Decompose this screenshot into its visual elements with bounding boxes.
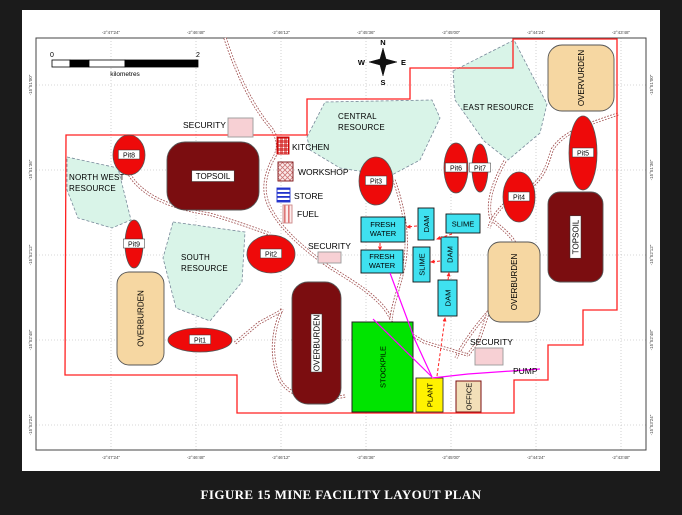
- central-resource-label: RESOURCE: [338, 123, 385, 132]
- svg-text:FRESH: FRESH: [369, 252, 394, 261]
- pit-label: Pit6: [450, 166, 462, 173]
- svg-text:WATER: WATER: [370, 229, 397, 238]
- pit-label: Pit2: [265, 252, 277, 259]
- overburden-west-label: OVERBURDEN: [137, 290, 146, 347]
- svg-text:OVERBURDEN: OVERBURDEN: [313, 315, 322, 372]
- svg-text:E: E: [401, 58, 406, 67]
- fuel-box: [283, 205, 292, 223]
- label-pump: PUMP: [513, 366, 538, 376]
- x-tick-bottom: -2°46'12": [272, 455, 291, 460]
- x-tick-bottom: -2°44'24": [527, 455, 546, 460]
- pit-label: Pit7: [474, 166, 486, 173]
- svg-text:WATER: WATER: [369, 261, 396, 270]
- x-tick-bottom: -2°45'36": [357, 455, 376, 460]
- svg-text:DAM: DAM: [445, 246, 454, 263]
- label-kitchen: KITCHEN: [292, 142, 329, 152]
- svg-text:OVERBURDEN: OVERBURDEN: [137, 290, 146, 347]
- y-tick-left: -15°52'48": [28, 329, 33, 350]
- dam-1-label: DAM: [422, 216, 431, 233]
- svg-text:TOPSOIL: TOPSOIL: [196, 172, 231, 181]
- label-store: STORE: [294, 191, 323, 201]
- overvurden-ne-label: OVERVURDEN: [577, 50, 586, 107]
- x-tick-top: -2°43'48": [612, 30, 631, 35]
- svg-text:STOCKPILE: STOCKPILE: [378, 346, 387, 388]
- svg-text:2: 2: [196, 52, 200, 59]
- x-tick-top: -2°47'24": [102, 30, 121, 35]
- figure-caption: FIGURE 15 MINE FACILITY LAYOUT PLAN: [0, 487, 682, 503]
- label-security: SECURITY: [308, 241, 351, 251]
- fresh-water-2-label: FRESHWATER: [369, 252, 396, 270]
- svg-text:DAM: DAM: [422, 216, 431, 233]
- y-tick-left: -15°51'36": [28, 159, 33, 180]
- svg-text:DAM: DAM: [443, 290, 452, 307]
- workshop-box: [278, 162, 293, 181]
- svg-text:FRESH: FRESH: [370, 220, 395, 229]
- svg-text:OFFICE: OFFICE: [464, 383, 473, 411]
- y-tick-left: -15°51'00": [28, 74, 33, 95]
- label-security: SECURITY: [183, 120, 226, 130]
- x-tick-top: -2°46'48": [187, 30, 206, 35]
- topsoil-east-label: TOPSOIL: [570, 216, 581, 258]
- svg-text:OVERBURDEN: OVERBURDEN: [510, 254, 519, 311]
- central-resource-label: CENTRAL: [338, 112, 377, 121]
- svg-text:0: 0: [50, 52, 54, 59]
- slime-1-label: SLIME: [452, 219, 475, 228]
- security-box-2: [318, 252, 341, 263]
- security-box-1: [228, 118, 253, 137]
- x-tick-bottom: -2°46'48": [187, 455, 206, 460]
- svg-text:SLIME: SLIME: [417, 253, 426, 276]
- svg-text:W: W: [358, 58, 366, 67]
- east-resource-label: EAST RESOURCE: [463, 103, 534, 112]
- svg-text:OVERVURDEN: OVERVURDEN: [577, 50, 586, 107]
- x-tick-top: -2°45'00": [442, 30, 461, 35]
- pit-label: Pit3: [370, 179, 382, 186]
- x-tick-bottom: -2°47'24": [102, 455, 121, 460]
- fresh-water-1-label: FRESHWATER: [370, 220, 397, 238]
- pit-label: Pit4: [513, 195, 525, 202]
- y-tick-right: -15°51'00": [649, 74, 654, 95]
- y-tick-right: -15°51'36": [649, 159, 654, 180]
- slime-2-label: SLIME: [417, 253, 426, 276]
- x-tick-bottom: -2°45'00": [442, 455, 461, 460]
- y-tick-right: -15°52'12": [649, 244, 654, 265]
- y-tick-left: -15°53'24": [28, 414, 33, 435]
- svg-text:PLANT: PLANT: [425, 383, 434, 408]
- topsoil-main-label: TOPSOIL: [192, 171, 234, 182]
- mine-layout-map: -2°47'24"-2°47'24"-2°46'48"-2°46'48"-2°4…: [0, 0, 682, 515]
- north-west-resource-label: RESOURCE: [69, 184, 116, 193]
- pit-label: Pit9: [128, 242, 140, 249]
- north-west-resource-label: NORTH WEST: [69, 173, 125, 182]
- svg-text:kilometres: kilometres: [110, 71, 140, 78]
- overburden-center-label: OVERBURDEN: [311, 314, 322, 372]
- office-label: OFFICE: [464, 383, 473, 411]
- x-tick-bottom: -2°43'48": [612, 455, 631, 460]
- dam-3-label: DAM: [443, 290, 452, 307]
- y-tick-left: -15°52'12": [28, 244, 33, 265]
- south-resource-label: RESOURCE: [181, 264, 228, 273]
- x-tick-top: -2°45'36": [357, 30, 376, 35]
- svg-text:S: S: [380, 78, 385, 87]
- dam-2-label: DAM: [445, 246, 454, 263]
- store-box: [277, 188, 290, 202]
- svg-text:N: N: [380, 38, 385, 47]
- pit-label: Pit5: [577, 151, 589, 158]
- x-tick-top: -2°46'12": [272, 30, 291, 35]
- label-security: SECURITY: [470, 337, 513, 347]
- svg-text:TOPSOIL: TOPSOIL: [572, 219, 581, 254]
- svg-text:SLIME: SLIME: [452, 219, 475, 228]
- south-resource-label: SOUTH: [181, 253, 210, 262]
- overburden-east-label: OVERBURDEN: [510, 254, 519, 311]
- y-tick-right: -15°52'48": [649, 329, 654, 350]
- kitchen-box: [277, 137, 289, 154]
- plant-label: PLANT: [425, 383, 434, 408]
- label-workshop: WORKSHOP: [298, 167, 349, 177]
- x-tick-top: -2°44'24": [527, 30, 546, 35]
- security-box-3: [475, 348, 503, 365]
- y-tick-right: -15°53'24": [649, 414, 654, 435]
- pit-label: Pit1: [194, 338, 206, 345]
- label-fuel: FUEL: [297, 209, 319, 219]
- stockpile-label: STOCKPILE: [378, 346, 387, 388]
- pit-label: Pit8: [123, 153, 135, 160]
